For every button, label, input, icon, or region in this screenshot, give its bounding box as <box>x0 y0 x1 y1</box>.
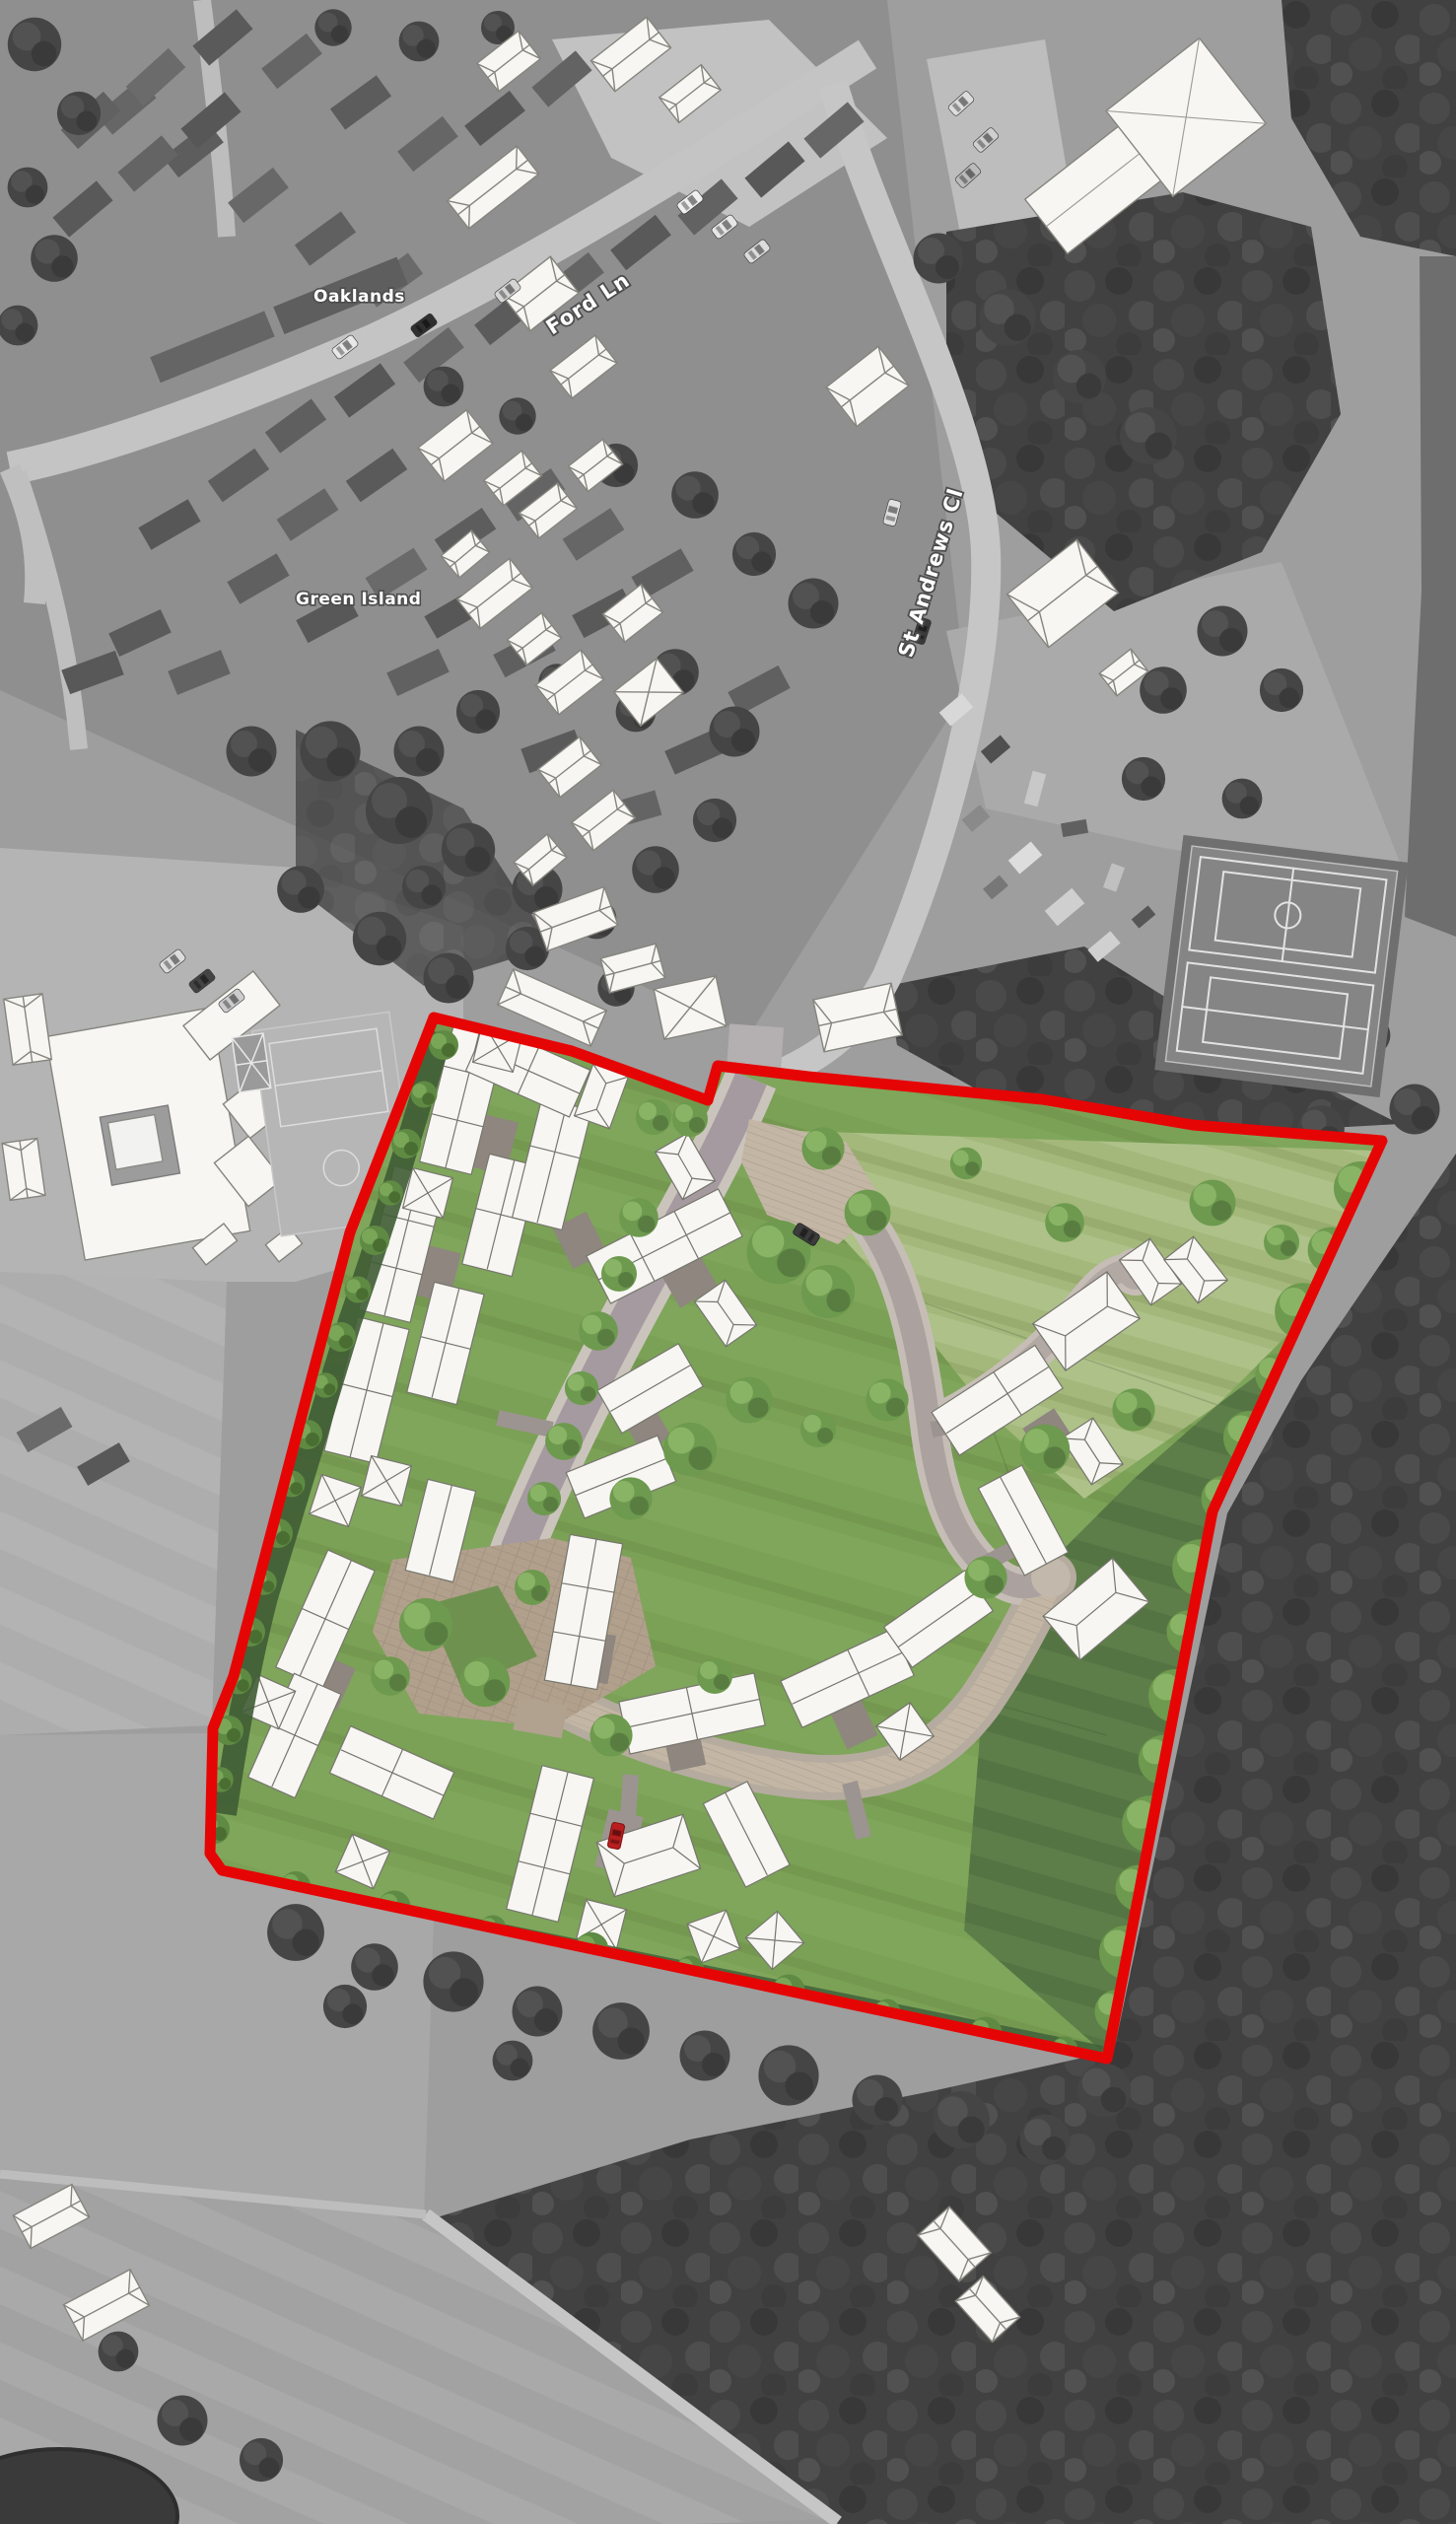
tennis-courts <box>1154 835 1409 1097</box>
site-plan-figure: Oaklands Green Island Ford Ln St Andrews… <box>0 0 1456 2524</box>
label-oaklands: Oaklands <box>313 287 405 307</box>
climbing-frame <box>232 1033 270 1092</box>
field-left-stripes <box>0 1272 227 1735</box>
label-green-island: Green Island <box>296 590 421 609</box>
